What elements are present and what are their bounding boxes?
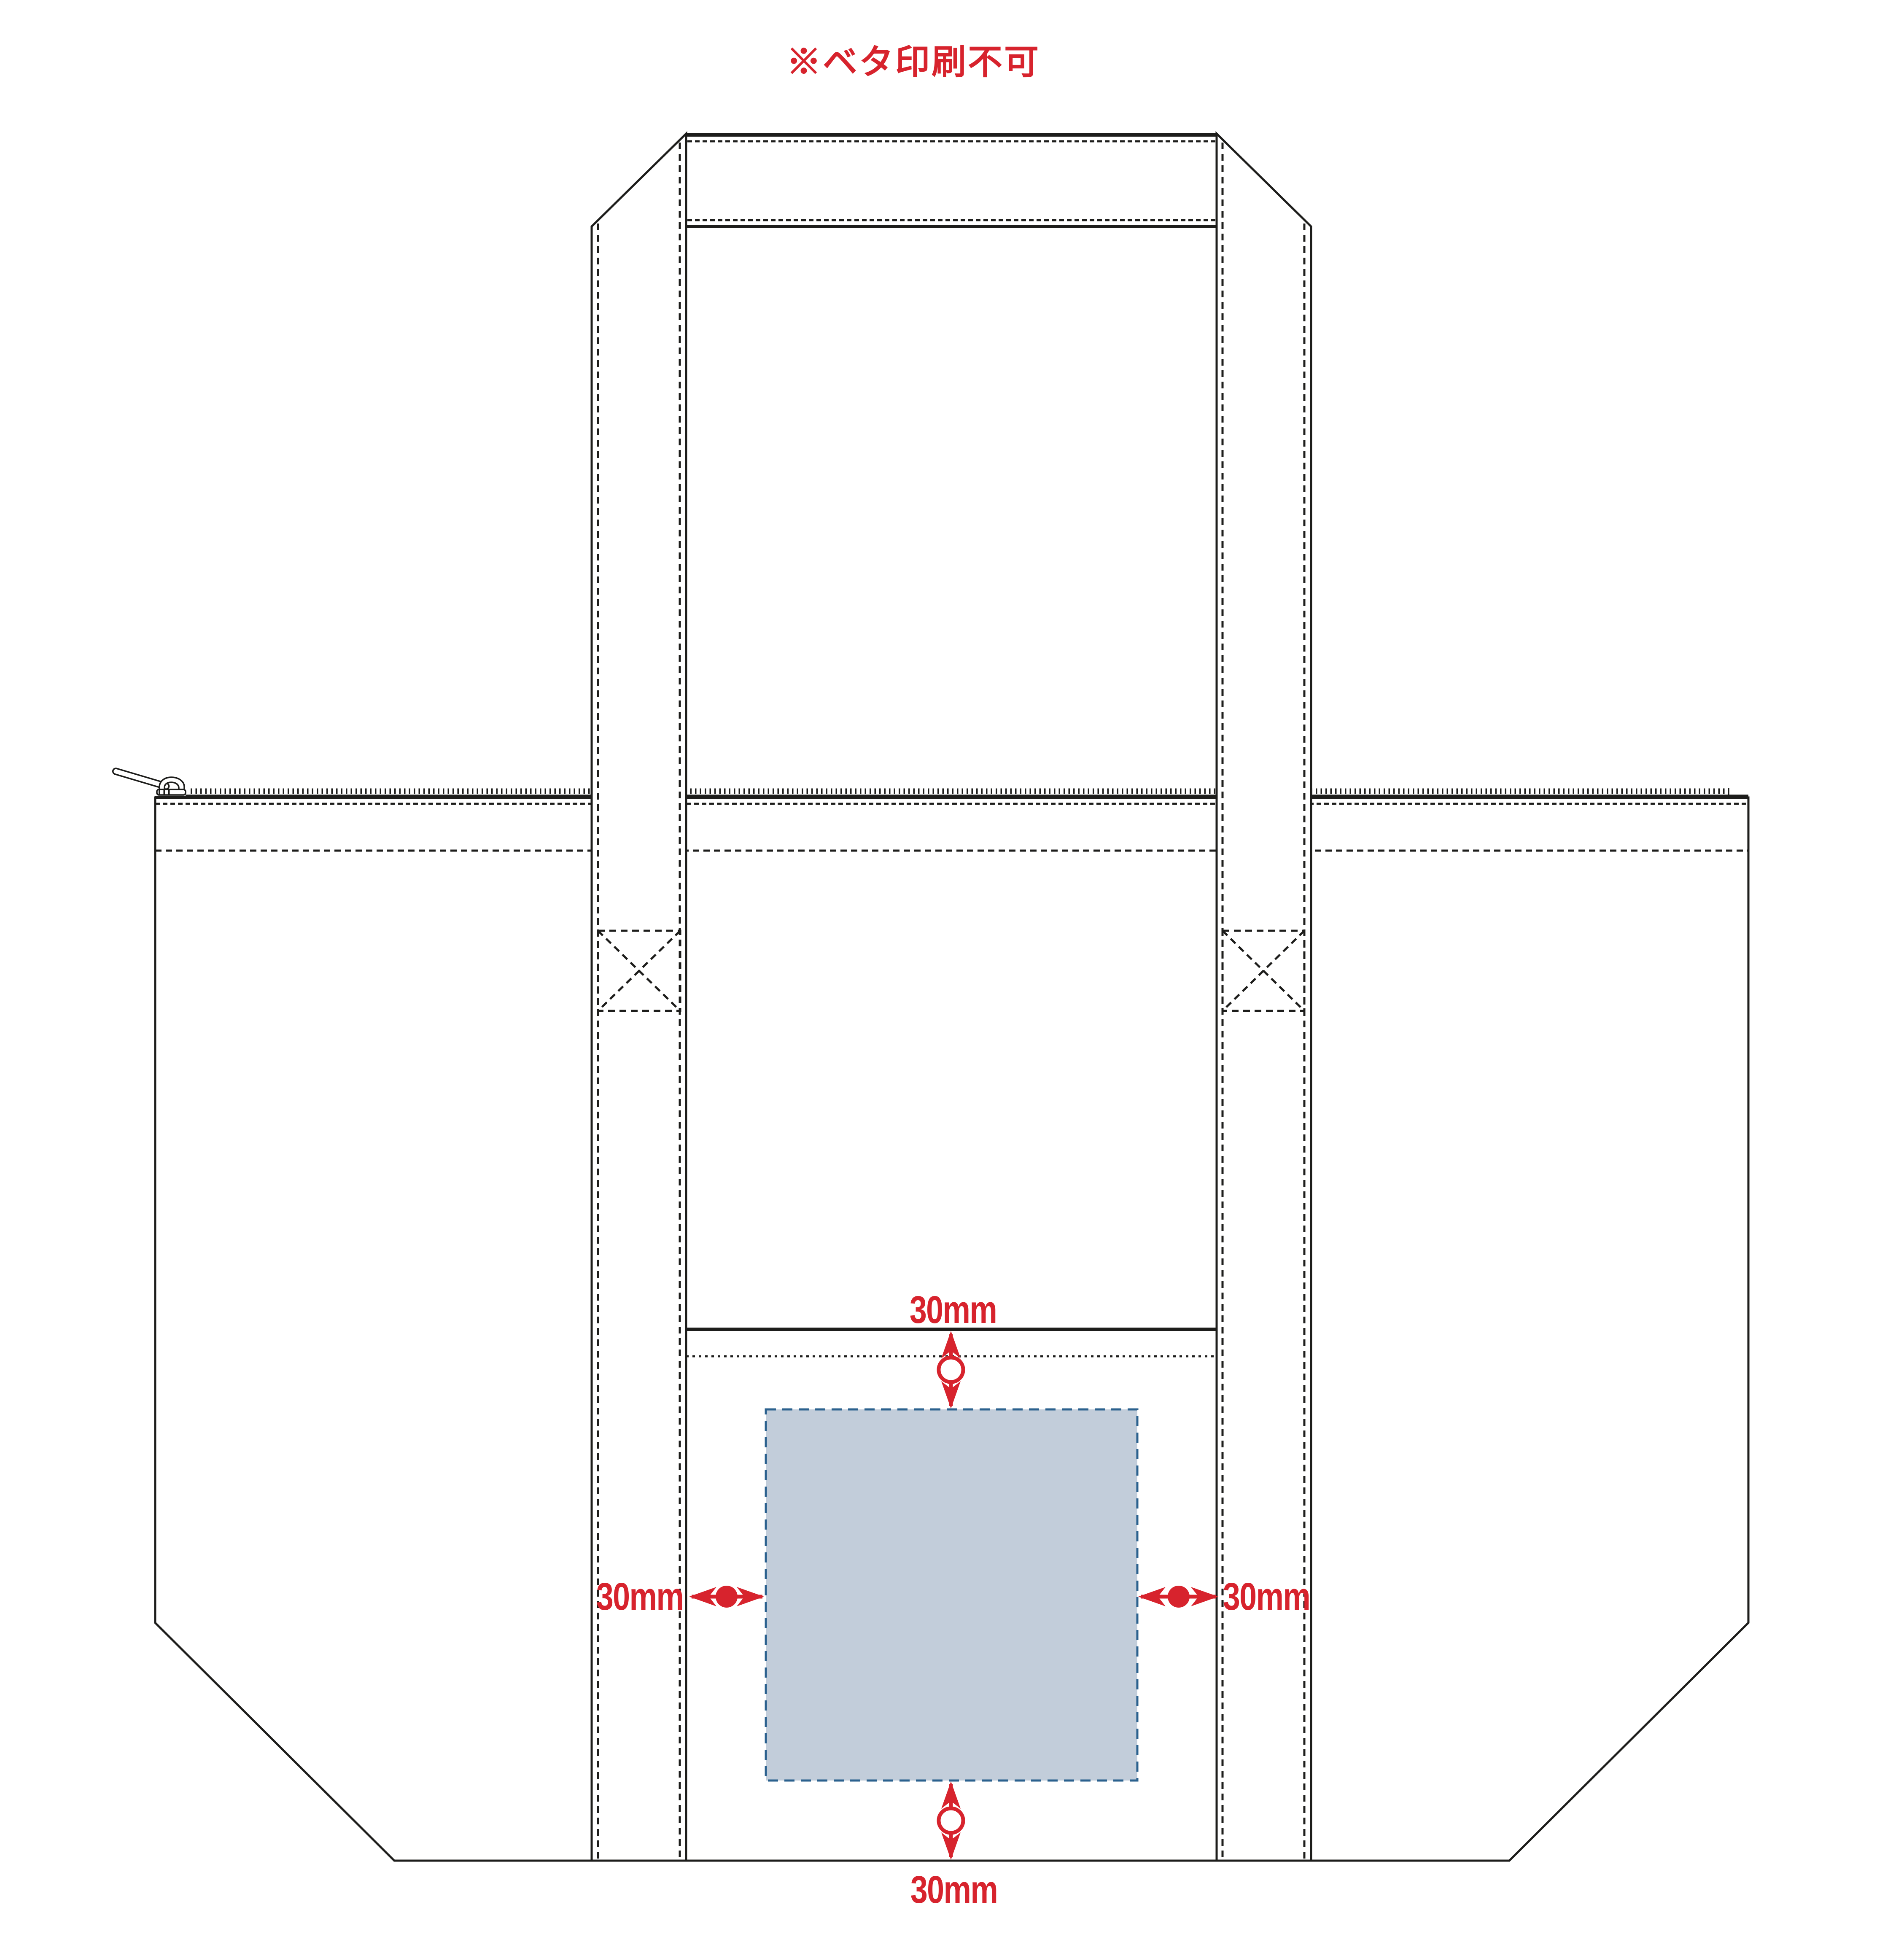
bag-print-spec-diagram: ※ベタ印刷不可 30mm 30mm 30mm 30mm — [0, 0, 1904, 1953]
diagram-canvas — [0, 0, 1904, 1953]
handle-top-band — [686, 134, 1217, 226]
dimension-label-bottom: 30mm — [910, 1870, 997, 1909]
zipper-slider-base — [157, 789, 186, 795]
print-area — [766, 1409, 1137, 1781]
zipper — [112, 768, 1748, 795]
page-title: ※ベタ印刷不可 — [786, 45, 1040, 80]
zipper-slider — [159, 777, 184, 789]
dimension-label-top: 30mm — [910, 1290, 996, 1329]
dimension-label-right: 30mm — [1223, 1577, 1310, 1616]
dimension-label-left: 30mm — [596, 1577, 683, 1616]
